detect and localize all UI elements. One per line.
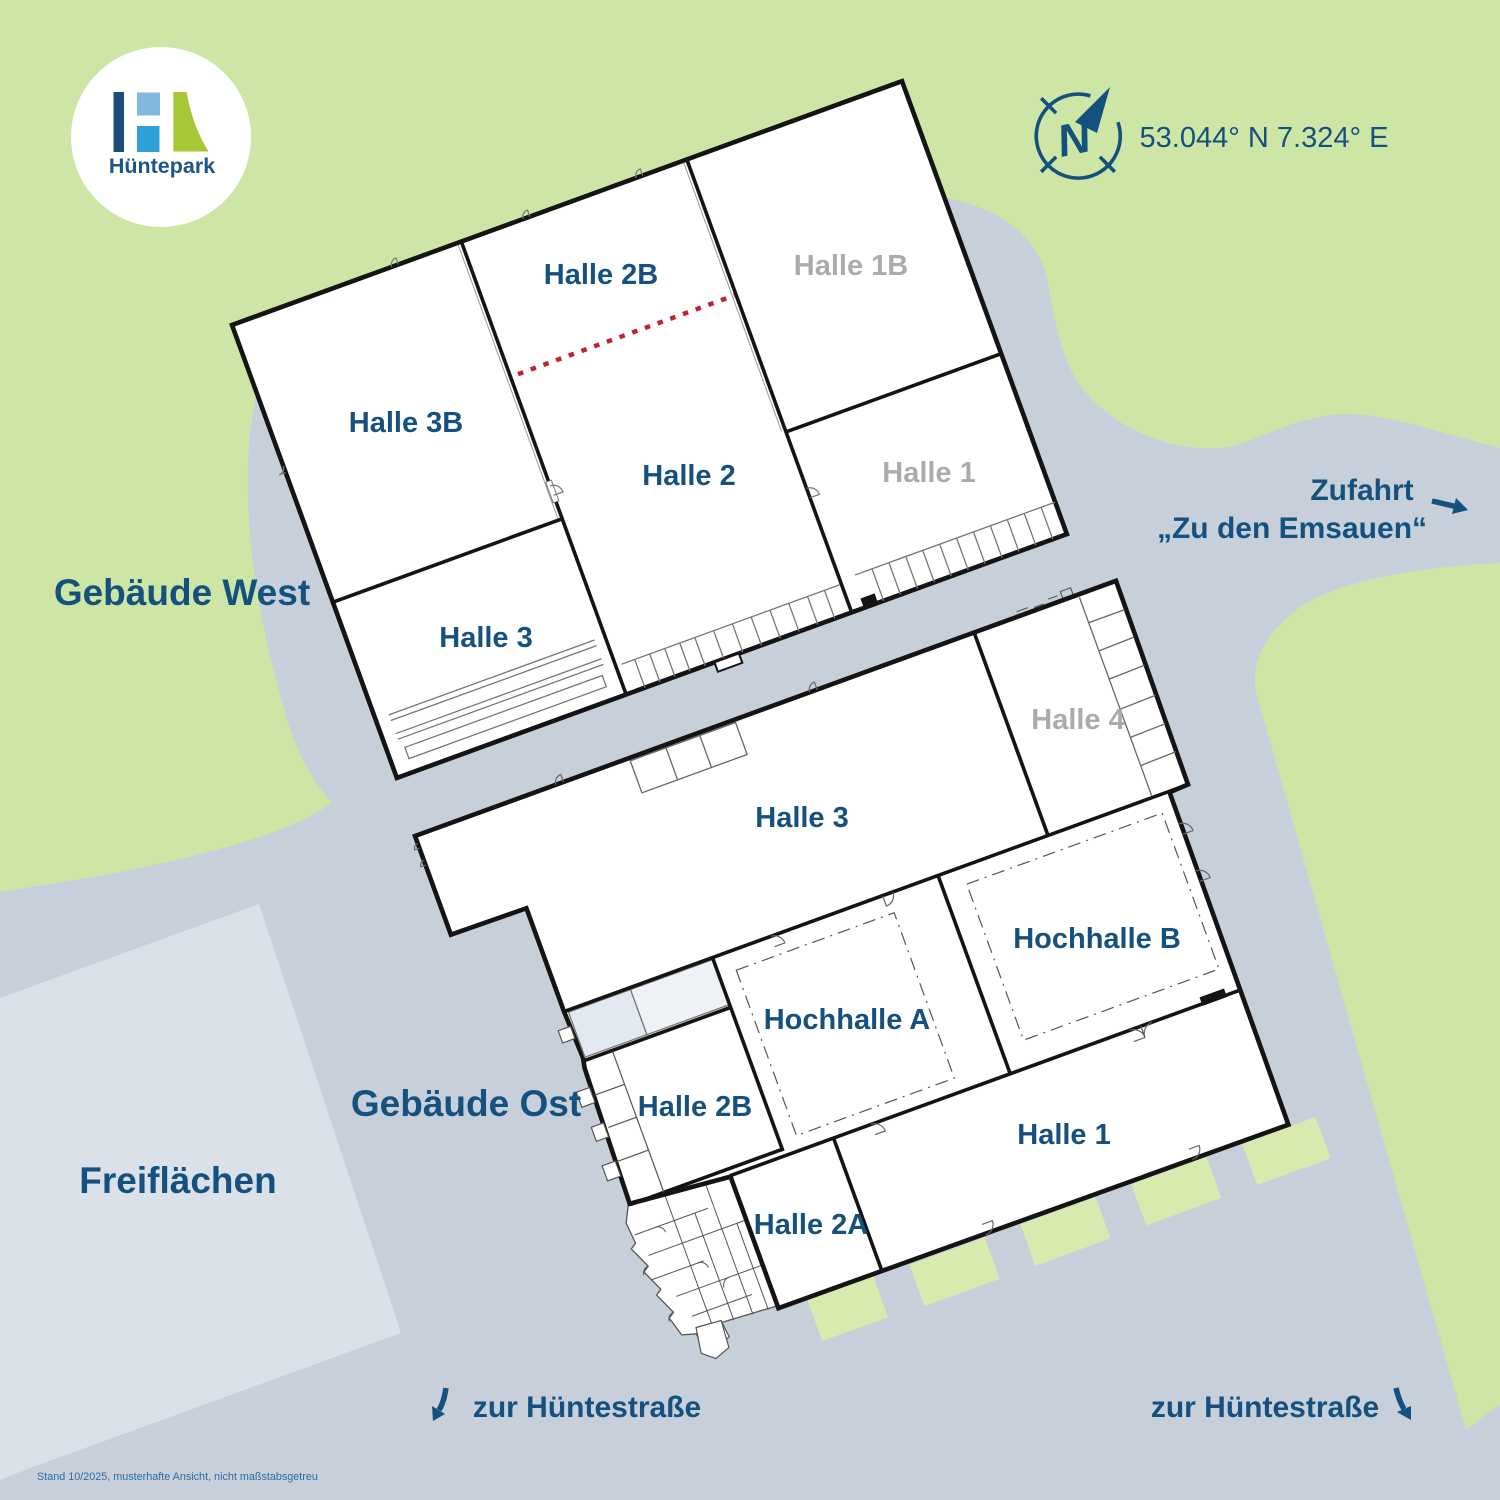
svg-text:„Zu den Emsauen“: „Zu den Emsauen“ xyxy=(1157,512,1427,545)
svg-text:Hochhalle A: Hochhalle A xyxy=(764,1004,931,1036)
svg-text:Halle 4: Halle 4 xyxy=(1031,704,1125,736)
svg-text:Halle 3: Halle 3 xyxy=(439,622,533,654)
svg-text:Stand 10/2025, musterhafte Ans: Stand 10/2025, musterhafte Ansicht, nich… xyxy=(37,1471,318,1483)
svg-text:Gebäude West: Gebäude West xyxy=(54,572,310,613)
svg-text:Halle 2A: Halle 2A xyxy=(754,1209,868,1241)
svg-text:Hüntepark: Hüntepark xyxy=(109,154,215,178)
svg-text:zur Hüntestraße: zur Hüntestraße xyxy=(473,1391,701,1424)
svg-text:Halle 3B: Halle 3B xyxy=(349,407,463,439)
svg-text:Halle 2B: Halle 2B xyxy=(638,1091,752,1123)
svg-text:Halle 3: Halle 3 xyxy=(755,802,849,834)
svg-text:Halle 1B: Halle 1B xyxy=(794,250,908,282)
svg-text:Halle 1: Halle 1 xyxy=(882,457,976,489)
svg-text:Freiflächen: Freiflächen xyxy=(79,1160,276,1201)
svg-text:Hochhalle B: Hochhalle B xyxy=(1013,923,1181,955)
svg-text:zur Hüntestraße: zur Hüntestraße xyxy=(1151,1391,1379,1424)
svg-text:Halle 2: Halle 2 xyxy=(642,460,736,492)
svg-text:Halle 1: Halle 1 xyxy=(1017,1119,1111,1151)
svg-text:Gebäude Ost: Gebäude Ost xyxy=(351,1083,581,1124)
svg-text:Zufahrt: Zufahrt xyxy=(1310,474,1413,507)
svg-text:53.044° N 7.324° E: 53.044° N 7.324° E xyxy=(1140,122,1389,154)
svg-text:Halle 2B: Halle 2B xyxy=(544,259,658,291)
